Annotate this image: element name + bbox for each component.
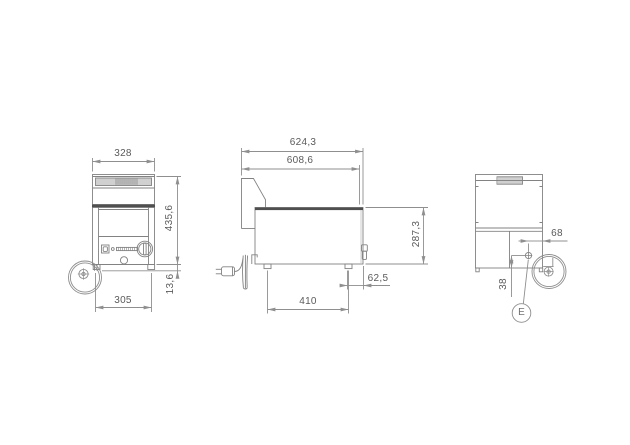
dim-front-height: 435,6 xyxy=(163,196,177,240)
cable-gland xyxy=(362,245,368,260)
drain-plug xyxy=(120,257,127,264)
side-rear-foot xyxy=(264,264,271,269)
power-plug xyxy=(216,267,235,276)
dim-side-depth-total: 624,3 xyxy=(281,136,325,150)
front-view xyxy=(69,175,156,295)
side-worktop-band xyxy=(255,208,363,211)
technical-drawing-page: 328 435,6 13,6 305 624,3 608,6 287,3 62,… xyxy=(0,0,630,445)
splash-guard xyxy=(242,179,266,229)
rear-left-foot xyxy=(476,268,479,272)
foot-detail-circle xyxy=(69,261,102,294)
front-right-foot xyxy=(148,265,155,270)
rear-grille xyxy=(497,177,523,184)
dim-rear-conn-from-side: 68 xyxy=(535,227,579,241)
rear-body xyxy=(476,175,543,269)
dim-side-foot-offset: 62,5 xyxy=(356,272,400,286)
side-front-foot xyxy=(345,264,352,269)
front-worktop-band xyxy=(92,205,155,208)
dim-side-body-height: 287,3 xyxy=(410,212,424,256)
dim-side-depth-body: 608,6 xyxy=(278,154,322,168)
dim-side-feet-spacing: 410 xyxy=(286,295,330,309)
side-body xyxy=(255,208,363,265)
control-knob xyxy=(137,241,153,257)
dim-front-width-bottom: 305 xyxy=(101,294,145,308)
power-cord xyxy=(235,255,258,289)
dim-rear-conn-from-bottom: 38 xyxy=(497,262,511,306)
rear-view xyxy=(476,175,567,323)
electrical-connection-marker xyxy=(525,252,533,260)
drawing-canvas xyxy=(0,0,630,445)
handle-rod xyxy=(117,247,138,250)
connection-detail-circle xyxy=(532,255,566,289)
side-view-dimensions xyxy=(242,148,429,314)
dim-front-width-top: 328 xyxy=(101,147,145,161)
front-grille xyxy=(96,178,152,186)
rear-right-foot xyxy=(539,268,542,272)
side-view xyxy=(216,179,367,290)
detail-balloon-e-label: E xyxy=(511,306,532,320)
dim-front-feet-height: 13,6 xyxy=(164,262,178,306)
power-switch xyxy=(102,245,115,253)
